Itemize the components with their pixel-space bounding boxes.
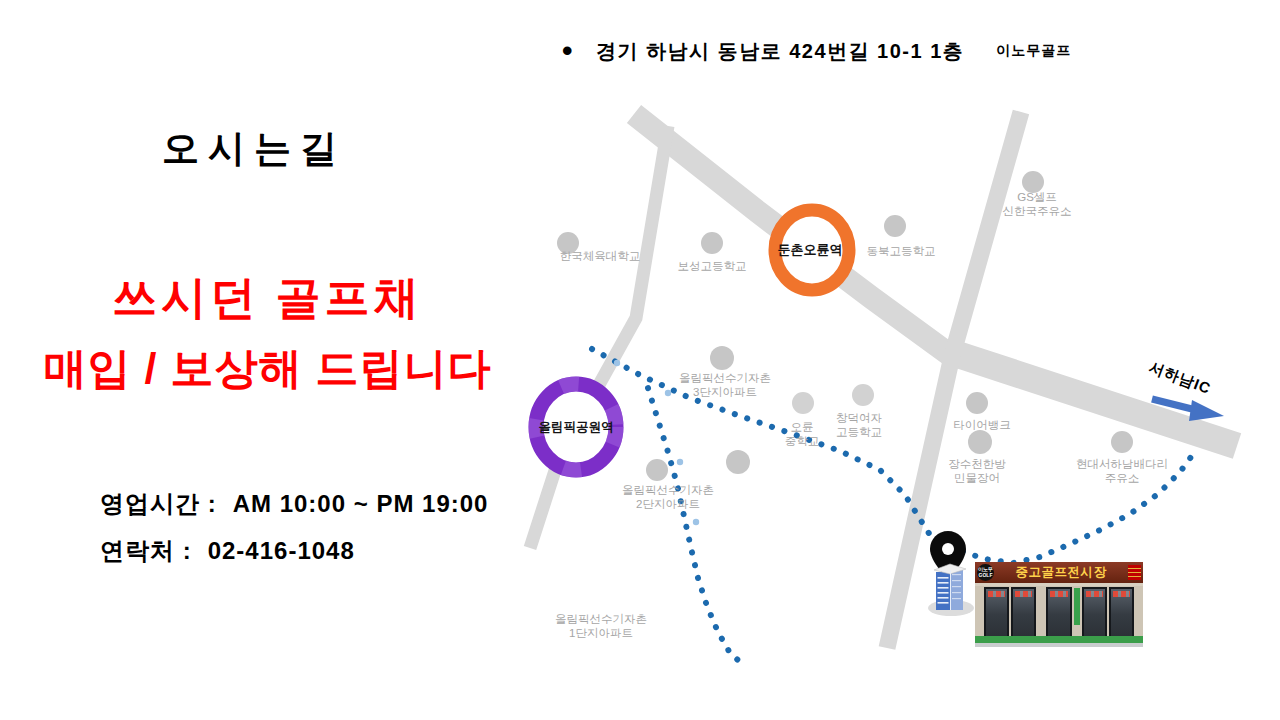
store-green-strip — [975, 636, 1143, 643]
promo-line2: 매입 / 보상해 드립니다 — [5, 340, 530, 398]
building-icon — [928, 564, 974, 616]
map-landmark-label: 동북고등학교 — [867, 244, 936, 258]
store-sidewalk — [975, 643, 1143, 647]
business-info: 영업시간 :AM 10:00 ~ PM 19:00 연락처 :02-416-10… — [100, 488, 488, 582]
brand-name: 이노무골프 — [996, 42, 1071, 60]
address-text: 경기 하남시 동남로 424번길 10-1 1층 — [596, 38, 964, 65]
hours-value: AM 10:00 ~ PM 19:00 — [233, 490, 489, 517]
store-pillar — [1037, 586, 1045, 636]
store-sign-endbox — [1128, 565, 1141, 580]
promo-block: 쓰시던 골프채 매입 / 보상해 드립니다 — [5, 268, 530, 398]
map-landmark-label: 올림픽선수기자촌 1단지아파트 — [555, 612, 647, 641]
map-landmark-label: 한국체육대학교 — [560, 249, 641, 263]
business-hours: 영업시간 :AM 10:00 ~ PM 19:00 — [100, 488, 488, 520]
storefront-photo: 이노무 GOLF 중고골프전시장 — [975, 562, 1143, 647]
map-landmark-label: 장수천한방 민물장어 — [948, 457, 1006, 486]
store-pillar — [975, 586, 983, 636]
store-window — [1082, 587, 1107, 636]
address-line: • 경기 하남시 동남로 424번길 10-1 1층 이노무골프 — [562, 36, 1071, 66]
store-facade — [975, 583, 1143, 636]
store-window — [984, 587, 1009, 636]
map-landmark-label: 올림픽선수기자촌 3단지아파트 — [679, 371, 771, 400]
map-landmark-label: 현대서하남배다리 주유소 — [1076, 457, 1168, 486]
map-landmark-label: 타이어뱅크 — [953, 418, 1011, 432]
phone-label: 연락처 : — [100, 537, 192, 564]
store-pillar-green-banner — [1073, 586, 1081, 636]
map-landmark-label: 보성고등학교 — [678, 259, 747, 273]
station-label-dunchon-oryun: 둔촌오륜역 — [778, 241, 843, 259]
store-sign-text: 중고골프전시장 — [994, 564, 1128, 581]
store-window — [1046, 587, 1071, 636]
contact-phone: 연락처 :02-416-1048 — [100, 535, 488, 567]
store-logo-bottom: GOLF — [979, 573, 993, 579]
store-sign: 이노무 GOLF 중고골프전시장 — [975, 562, 1143, 583]
map-landmark-label: 창덕여자 고등학교 — [836, 411, 882, 440]
store-pillar — [1135, 586, 1143, 636]
store-logo: 이노무 GOLF — [977, 564, 994, 581]
bullet-icon: • — [562, 36, 574, 66]
map-landmark-label: GS셀프 신한국주유소 — [1003, 190, 1072, 219]
store-window — [1011, 587, 1036, 636]
map-landmark-label: 올림픽선수기자촌 2단지아파트 — [622, 483, 714, 512]
station-label-olympic-park: 올림픽공원역 — [539, 419, 614, 436]
promo-line1: 쓰시던 골프채 — [5, 268, 530, 328]
direction-flyer: • 경기 하남시 동남로 424번길 10-1 1층 이노무골프 오시는길 쓰시… — [0, 0, 1280, 720]
hours-label: 영업시간 : — [100, 490, 217, 517]
page-title: 오시는길 — [162, 124, 346, 174]
map-landmark-label: 오륜 중학교 — [785, 420, 820, 449]
phone-value: 02-416-1048 — [208, 537, 355, 564]
store-window — [1109, 587, 1134, 636]
